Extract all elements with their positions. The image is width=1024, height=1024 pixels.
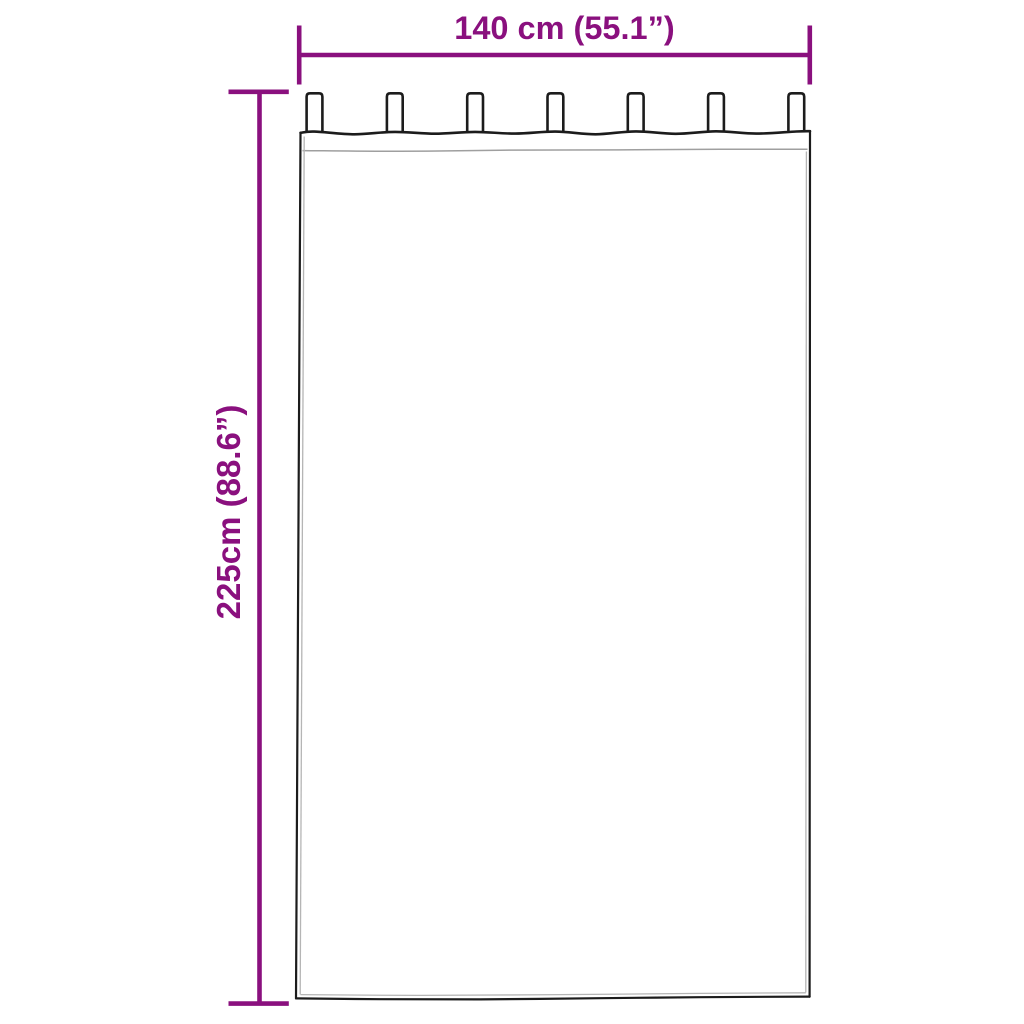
svg-text:140 cm (55.1”): 140 cm (55.1”) [454, 10, 674, 46]
svg-text:225cm (88.6”): 225cm (88.6”) [210, 405, 247, 620]
